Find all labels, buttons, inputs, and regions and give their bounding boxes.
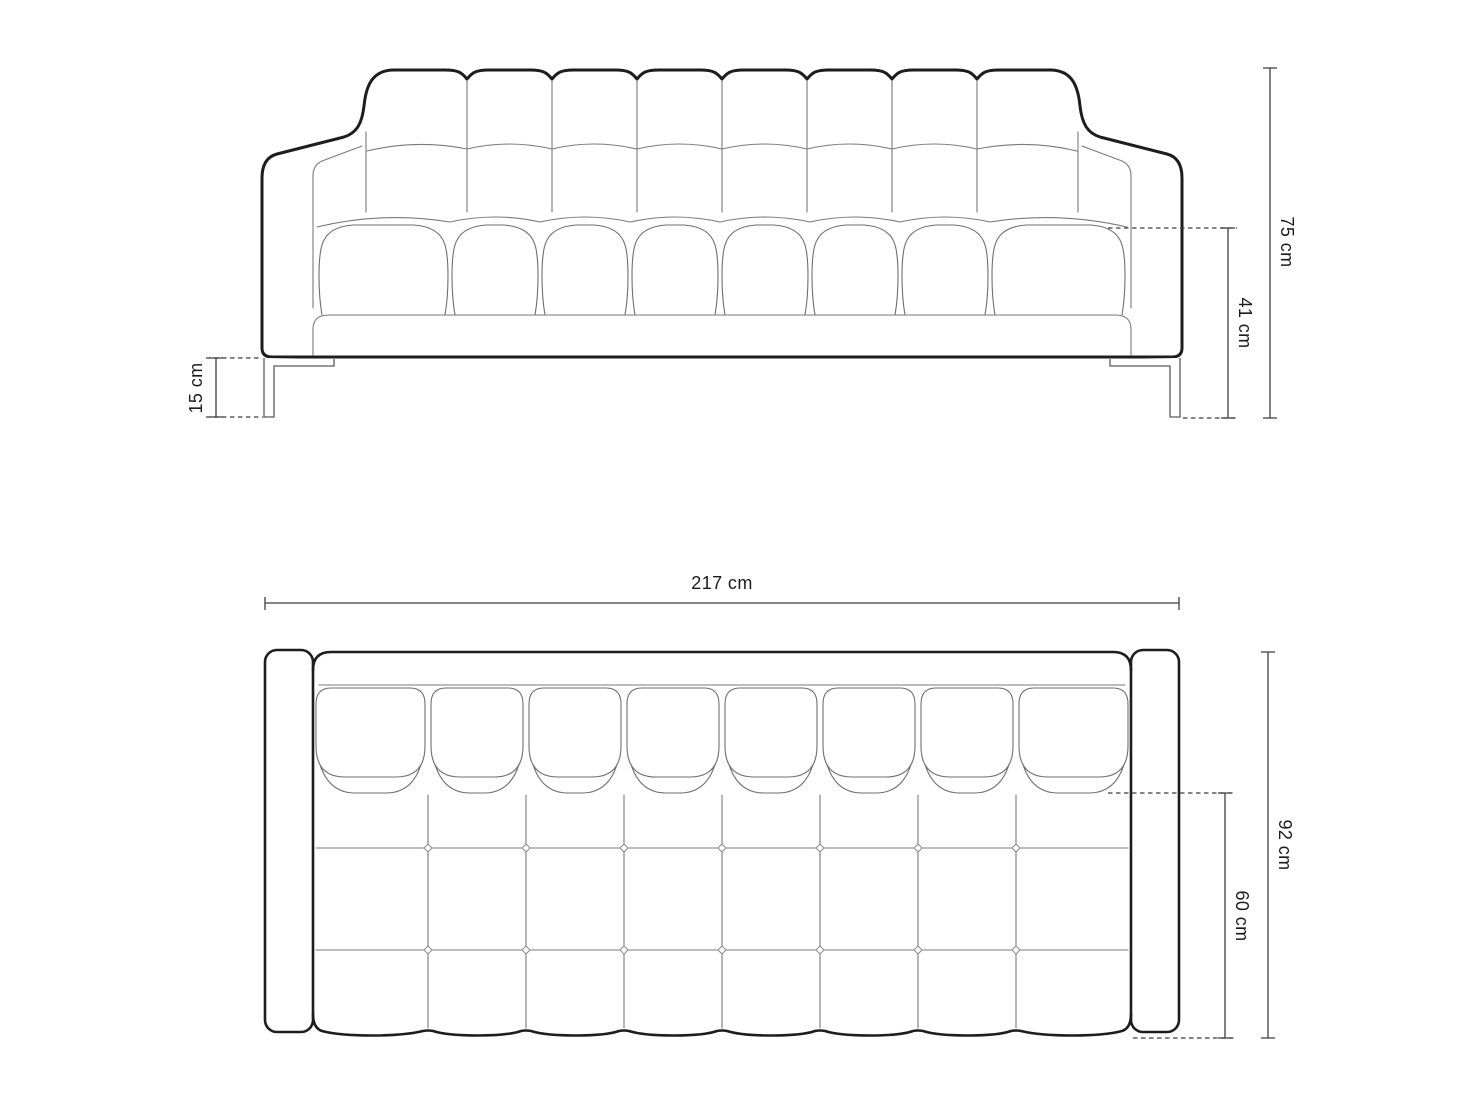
front-right-arm-inner-line [1082, 146, 1131, 308]
front-seat-cushion [632, 225, 718, 315]
front-seat-cushion [452, 225, 538, 315]
plan-back-cushion-top [431, 688, 523, 777]
dimension-total-width-label: 217 cm [691, 573, 752, 593]
front-seat-cushion [992, 225, 1125, 315]
dimension-seat-height-label: 41 cm [1235, 297, 1255, 348]
front-lumbar-roll-line [317, 217, 1127, 227]
dimension-total-width-line [265, 597, 1179, 610]
front-base-band [313, 315, 1131, 355]
drawing-svg: 75 cm 41 cm 15 cm [0, 0, 1475, 1106]
front-left-arm-inner-line [313, 146, 362, 308]
dimension-total-depth-line [1261, 652, 1275, 1038]
plan-left-armrest [265, 650, 313, 1032]
plan-back-cushion-top [316, 688, 425, 777]
dimension-total-depth-label: 92 cm [1275, 819, 1295, 870]
dimension-seat-height-line [1221, 228, 1235, 418]
front-seat-cushion [902, 225, 988, 315]
dimension-total-width: 217 cm [265, 573, 1179, 610]
front-elevation-view: 75 cm 41 cm 15 cm [186, 68, 1297, 418]
dimension-total-depth: 92 cm [1261, 652, 1295, 1038]
plan-back-cushion-top [921, 688, 1013, 777]
dimension-leg-height-label: 15 cm [186, 362, 206, 413]
dimension-seat-depth-line [1218, 793, 1232, 1038]
plan-back-cushions [316, 688, 1128, 793]
dimension-total-height: 75 cm [1263, 68, 1297, 418]
plan-back-cushion-top [627, 688, 719, 777]
dimension-total-height-label: 75 cm [1277, 216, 1297, 267]
front-right-leg [1110, 358, 1180, 417]
dimension-seat-depth-label: 60 cm [1232, 890, 1252, 941]
front-seat-cushion [722, 225, 808, 315]
front-seat-cushion [319, 225, 448, 315]
plan-body-top-edge [313, 652, 1131, 670]
plan-tuft-grid-verticals [428, 795, 1016, 1028]
plan-back-cushion-top [1019, 688, 1128, 777]
front-seat-cushion [542, 225, 628, 315]
sofa-technical-drawing: 75 cm 41 cm 15 cm [0, 0, 1475, 1106]
dimension-leg-height-line [209, 358, 223, 417]
front-seat-cushion [812, 225, 898, 315]
plan-back-cushion-top [823, 688, 915, 777]
dimension-leg-height: 15 cm [186, 358, 263, 417]
plan-back-cushion-top [529, 688, 621, 777]
plan-right-armrest [1131, 650, 1179, 1032]
top-plan-view: 217 cm 92 cm 60 cm [265, 573, 1295, 1038]
plan-back-cushion-top [725, 688, 817, 777]
front-back-tuft-verticals [366, 81, 1078, 212]
front-left-leg [264, 358, 334, 417]
front-seat-cushions [319, 225, 1125, 315]
dimension-total-height-line [1263, 68, 1277, 418]
